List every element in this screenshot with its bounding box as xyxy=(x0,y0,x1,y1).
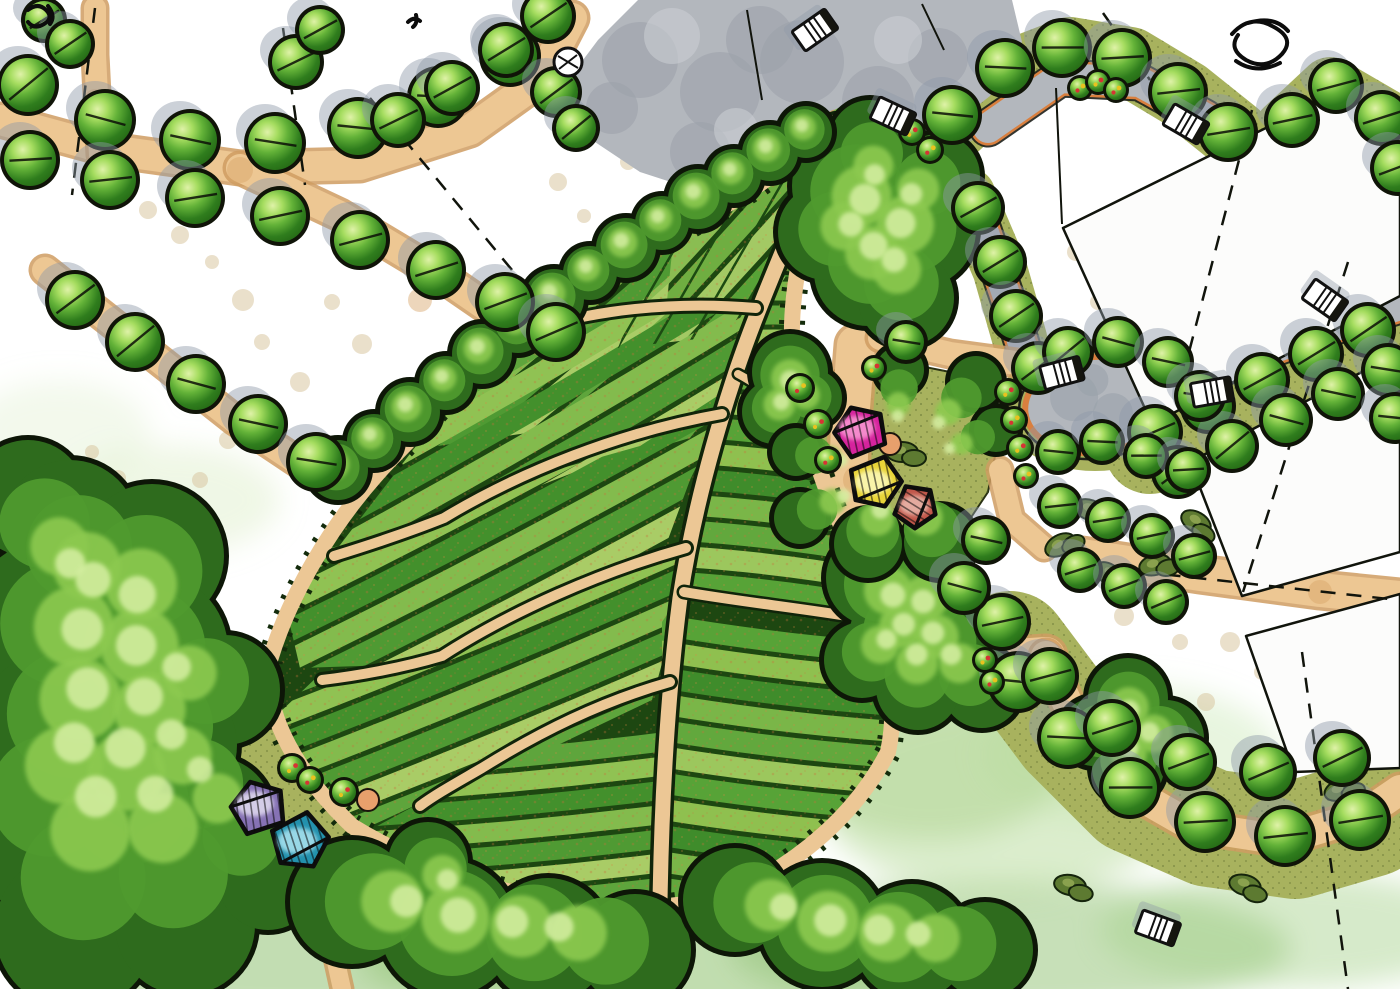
fruit-dot xyxy=(1075,88,1079,92)
canopy-highlight xyxy=(61,608,103,650)
shrub-lobe xyxy=(902,450,926,466)
fruit-dot xyxy=(829,455,834,460)
sand-speckle xyxy=(549,173,567,191)
canopy-highlight xyxy=(900,183,922,205)
porch-circle xyxy=(357,789,379,811)
fruit-dot xyxy=(1015,415,1020,420)
canopy-highlight xyxy=(882,247,907,272)
fruit-dot xyxy=(1003,393,1007,397)
canopy-highlight xyxy=(838,212,863,237)
canopy-highlight xyxy=(397,397,413,413)
fruit-tree xyxy=(329,777,359,807)
fruit-dot xyxy=(345,787,350,792)
fruit-tree-crown xyxy=(1009,437,1031,459)
sand-speckle xyxy=(205,255,219,269)
sand-speckle xyxy=(85,445,99,459)
forest-west xyxy=(0,435,323,989)
fruit-tree xyxy=(296,766,324,794)
canopy-highlight xyxy=(932,416,946,430)
street-tree xyxy=(37,262,105,330)
canopy-highlight xyxy=(496,905,528,937)
canopy-highlight xyxy=(105,728,146,769)
fruit-tree-crown xyxy=(788,376,812,400)
canopy-highlight xyxy=(906,644,928,666)
canopy-highlight xyxy=(54,722,95,763)
canopy-highlight xyxy=(66,667,109,710)
fruit-dot xyxy=(339,793,343,797)
canopy-highlight xyxy=(137,776,173,812)
sand-speckle xyxy=(1197,693,1215,711)
canopy-highlight xyxy=(921,621,944,644)
fruit-tree-crown xyxy=(975,650,995,670)
fruit-dot xyxy=(931,145,936,150)
canopy-highlight xyxy=(773,394,790,411)
fruit-dot xyxy=(1027,472,1032,477)
fruit-tree xyxy=(1000,406,1028,434)
canopy-highlight xyxy=(545,912,574,941)
canopy-highlight xyxy=(941,644,962,665)
paving-blotch xyxy=(726,6,794,74)
fruit-dot xyxy=(1117,86,1122,91)
fruit-tree-crown xyxy=(1016,466,1036,486)
boundary-line xyxy=(1056,88,1062,224)
master-plan-drawing xyxy=(0,0,1400,989)
fruit-tree-crown xyxy=(817,449,839,471)
street-tree xyxy=(1077,489,1131,543)
canopy-highlight xyxy=(126,678,163,715)
fruit-dot xyxy=(993,678,998,683)
canopy-highlight xyxy=(880,583,905,608)
street-tree xyxy=(322,202,390,270)
canopy-highlight xyxy=(390,885,422,917)
ink-scribble xyxy=(1232,20,1288,68)
sand-speckle xyxy=(577,209,591,223)
round-table xyxy=(554,48,582,76)
fruit-dot xyxy=(1015,449,1019,453)
fruit-dot xyxy=(875,364,880,369)
site-plan-canvas xyxy=(0,0,1400,989)
fruit-dot xyxy=(986,656,991,661)
canopy-highlight xyxy=(685,184,701,200)
street-tree xyxy=(1029,475,1083,529)
canopy-highlight xyxy=(613,233,629,249)
fruit-tree xyxy=(994,378,1022,406)
path-blotch xyxy=(227,157,253,183)
canopy-highlight xyxy=(440,897,475,932)
sand-speckle xyxy=(324,294,340,310)
fruit-dot xyxy=(311,775,316,780)
fruit-tree-crown xyxy=(299,769,321,791)
fruit-tree-crown xyxy=(982,672,1002,692)
fruit-tree xyxy=(1006,434,1034,462)
canopy-highlight xyxy=(906,921,931,946)
fruit-dot xyxy=(1021,476,1025,480)
fruit-tree xyxy=(803,409,833,439)
canopy-highlight xyxy=(651,209,665,223)
sand-speckle xyxy=(1220,632,1240,652)
canopy-highlight xyxy=(849,184,880,215)
canopy-highlight xyxy=(758,139,773,154)
sand-speckle xyxy=(232,289,254,311)
branch-stroke xyxy=(1087,441,1117,442)
fruit-dot xyxy=(1081,84,1086,89)
street-tree xyxy=(278,424,346,492)
fruit-tree-crown xyxy=(919,139,941,161)
canopy-highlight xyxy=(156,719,186,749)
canopy-highlight xyxy=(891,410,903,422)
fruit-dot xyxy=(1021,443,1026,448)
ink-scribble xyxy=(408,15,420,27)
canopy-highlight xyxy=(469,339,485,355)
canopy-highlight xyxy=(814,904,846,936)
fruit-dot xyxy=(869,368,873,372)
sand-speckle xyxy=(192,472,208,488)
fruit-dot xyxy=(987,682,991,686)
fruit-dot xyxy=(1111,90,1115,94)
fruit-dot xyxy=(980,660,984,664)
fruit-dot xyxy=(823,461,827,465)
canopy-highlight xyxy=(363,427,377,441)
fruit-tree xyxy=(916,136,944,164)
sand-speckle xyxy=(139,201,157,219)
canopy-highlight xyxy=(75,776,117,818)
fruit-tree-crown xyxy=(864,358,884,378)
fruit-dot xyxy=(1009,421,1013,425)
sand-speckle xyxy=(352,334,372,354)
canopy-highlight xyxy=(116,625,157,666)
fruit-dot xyxy=(819,419,824,424)
fruit-dot xyxy=(913,127,918,132)
canopy-highlight xyxy=(911,590,935,614)
sand-speckle xyxy=(290,372,310,392)
fruit-tree xyxy=(785,373,815,403)
canopy-highlight xyxy=(944,443,955,454)
sand-speckle xyxy=(1172,634,1188,650)
fruit-dot xyxy=(287,769,291,773)
canopy-highlight xyxy=(75,562,110,597)
paving-light xyxy=(644,8,700,64)
canopy-highlight xyxy=(162,653,191,682)
fruit-tree-crown xyxy=(806,412,830,436)
street-tree xyxy=(97,304,165,372)
street-tree xyxy=(398,232,466,300)
sand-speckle xyxy=(254,334,270,350)
fruit-dot xyxy=(813,425,817,429)
canopy-highlight xyxy=(770,893,797,920)
fruit-dot xyxy=(1099,78,1104,83)
fruit-tree-crown xyxy=(332,780,356,804)
fruit-dot xyxy=(1009,387,1014,392)
fruit-tree xyxy=(979,669,1005,695)
fruit-tree xyxy=(1013,463,1039,489)
sand-speckle xyxy=(171,226,189,244)
fruit-tree xyxy=(1103,77,1129,103)
street-tree xyxy=(158,346,226,414)
canopy-highlight xyxy=(892,613,915,636)
canopy-highlight xyxy=(864,164,885,185)
paving-light xyxy=(874,16,922,64)
fruit-dot xyxy=(795,389,799,393)
canopy-highlight xyxy=(723,162,737,176)
fruit-tree-crown xyxy=(1003,409,1025,431)
canopy-highlight xyxy=(435,369,449,383)
fruit-tree-crown xyxy=(997,381,1019,403)
fruit-tree xyxy=(861,355,887,381)
fruit-dot xyxy=(293,763,298,768)
canopy-highlight xyxy=(864,915,894,945)
fruit-dot xyxy=(1093,82,1097,86)
canopy-highlight xyxy=(437,869,458,890)
canopy-highlight xyxy=(119,576,156,613)
fruit-dot xyxy=(925,151,929,155)
canopy-highlight xyxy=(579,259,593,273)
canopy-highlight xyxy=(837,489,851,503)
canopy-highlight xyxy=(877,629,897,649)
canopy-highlight xyxy=(187,757,213,783)
fruit-dot xyxy=(801,383,806,388)
canopy-highlight xyxy=(795,119,809,133)
fruit-tree xyxy=(814,446,842,474)
fruit-dot xyxy=(305,781,309,785)
canopy-highlight xyxy=(885,208,915,238)
fruit-tree-crown xyxy=(1106,80,1126,100)
fruit-tree xyxy=(972,647,998,673)
